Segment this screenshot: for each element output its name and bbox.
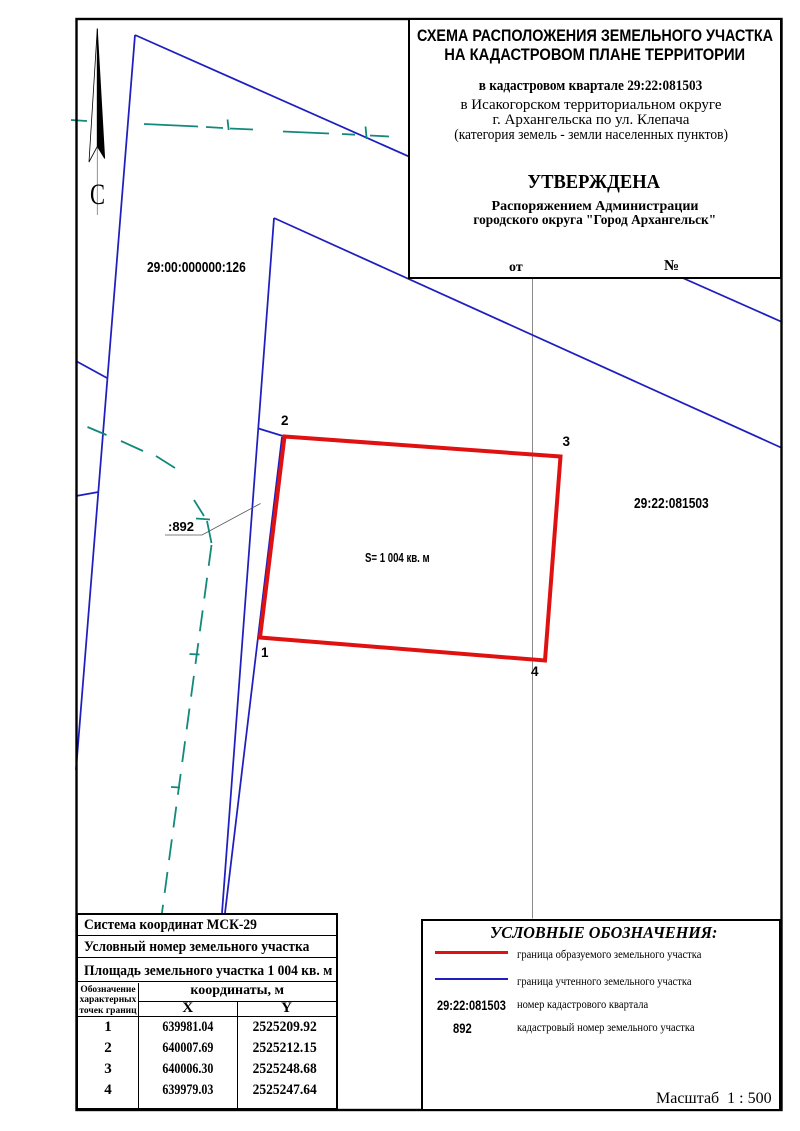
svg-text:С: С bbox=[90, 178, 105, 211]
